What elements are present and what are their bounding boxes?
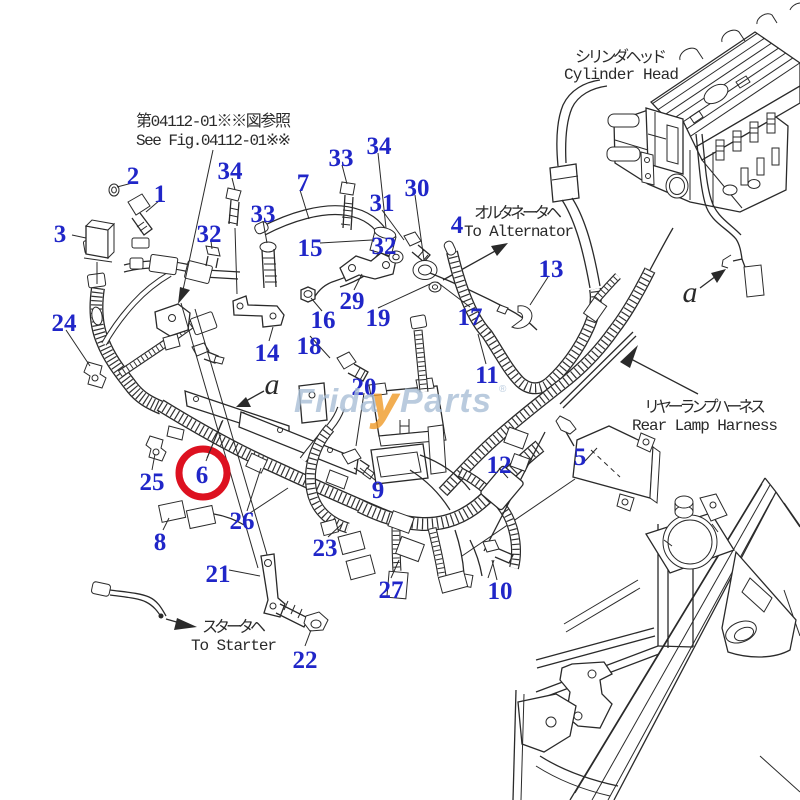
- svg-text:33: 33: [329, 145, 354, 172]
- svg-text:Cylinder Head: Cylinder Head: [564, 66, 679, 84]
- svg-text:22: 22: [293, 647, 318, 674]
- svg-text:32: 32: [372, 233, 397, 260]
- svg-text:4: 4: [451, 212, 464, 239]
- svg-text:Rear Lamp Harness: Rear Lamp Harness: [632, 417, 778, 435]
- svg-text:15: 15: [298, 235, 323, 262]
- svg-text:1: 1: [154, 181, 167, 208]
- svg-text:Frida: Frida: [294, 382, 380, 419]
- svg-text:y: y: [370, 377, 400, 429]
- svg-text:リヤーランプハーネス: リヤーランプハーネス: [644, 398, 766, 417]
- svg-text:26: 26: [230, 508, 255, 535]
- svg-text:16: 16: [311, 307, 336, 334]
- svg-text:Parts: Parts: [400, 382, 493, 420]
- svg-text:12: 12: [487, 452, 512, 479]
- svg-text:a: a: [265, 368, 280, 401]
- svg-text:24: 24: [52, 310, 78, 337]
- svg-text:9: 9: [372, 477, 385, 504]
- svg-text:To Starter: To Starter: [191, 637, 277, 655]
- svg-text:8: 8: [154, 529, 167, 556]
- svg-text:See Fig.04112-01※※: See Fig.04112-01※※: [136, 132, 291, 150]
- svg-text:27: 27: [379, 577, 404, 604]
- svg-text:29: 29: [340, 288, 365, 315]
- svg-text:23: 23: [313, 535, 338, 562]
- svg-text:10: 10: [488, 578, 513, 605]
- svg-text:32: 32: [197, 221, 222, 248]
- svg-text:7: 7: [297, 170, 310, 197]
- svg-text:25: 25: [140, 469, 165, 496]
- svg-text:第04112-01※※図参照: 第04112-01※※図参照: [136, 112, 291, 131]
- svg-text:シリンダヘッド: シリンダヘッド: [575, 48, 667, 67]
- svg-text:To Alternator: To Alternator: [464, 223, 574, 241]
- svg-text:14: 14: [255, 340, 281, 367]
- svg-text:34: 34: [218, 158, 244, 185]
- svg-text:2: 2: [127, 163, 140, 190]
- svg-text:6: 6: [196, 462, 209, 489]
- svg-text:17: 17: [458, 304, 483, 331]
- svg-text:31: 31: [370, 190, 395, 217]
- svg-text:スタータヘ: スタータヘ: [202, 618, 266, 637]
- svg-text:19: 19: [366, 305, 391, 332]
- svg-text:34: 34: [367, 133, 393, 160]
- svg-text:3: 3: [54, 221, 67, 248]
- svg-text:®: ®: [499, 384, 507, 395]
- svg-text:13: 13: [539, 256, 564, 283]
- svg-text:33: 33: [251, 201, 276, 228]
- svg-text:a: a: [683, 276, 698, 309]
- svg-text:18: 18: [297, 333, 322, 360]
- svg-text:21: 21: [206, 561, 231, 588]
- svg-text:5: 5: [574, 444, 587, 471]
- svg-text:30: 30: [405, 175, 430, 202]
- svg-text:オルタネータヘ: オルタネータヘ: [474, 204, 562, 223]
